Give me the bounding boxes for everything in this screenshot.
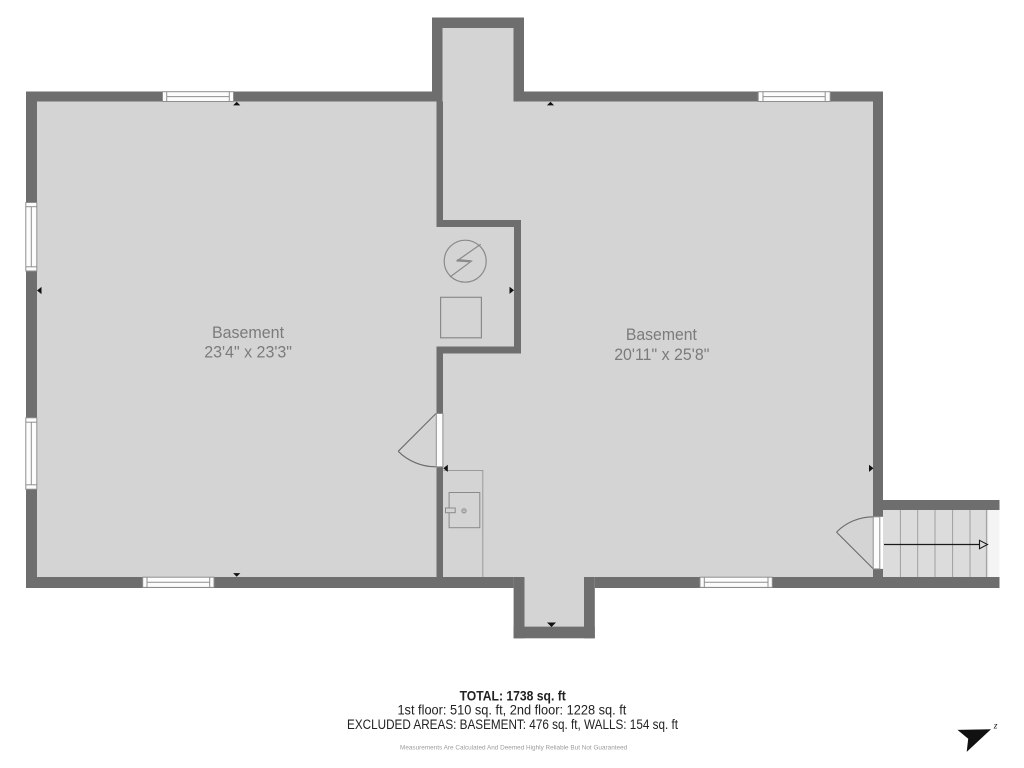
- svg-text:z: z: [993, 722, 998, 732]
- svg-text:Basement: Basement: [212, 323, 284, 342]
- svg-text:Basement: Basement: [626, 325, 697, 344]
- svg-text:TOTAL: 1738 sq. ft: TOTAL: 1738 sq. ft: [460, 689, 567, 704]
- svg-text:EXCLUDED AREAS: BASEMENT: 476: EXCLUDED AREAS: BASEMENT: 476 sq. ft, WA…: [347, 717, 678, 732]
- svg-text:Measurements Are Calculated An: Measurements Are Calculated And Deemed H…: [400, 745, 627, 752]
- svg-text:20'11" x 25'8": 20'11" x 25'8": [614, 345, 709, 364]
- svg-text:23'4" x 23'3": 23'4" x 23'3": [204, 343, 292, 362]
- svg-text:1st floor: 510 sq. ft, 2nd flo: 1st floor: 510 sq. ft, 2nd floor: 1228 s…: [397, 702, 626, 717]
